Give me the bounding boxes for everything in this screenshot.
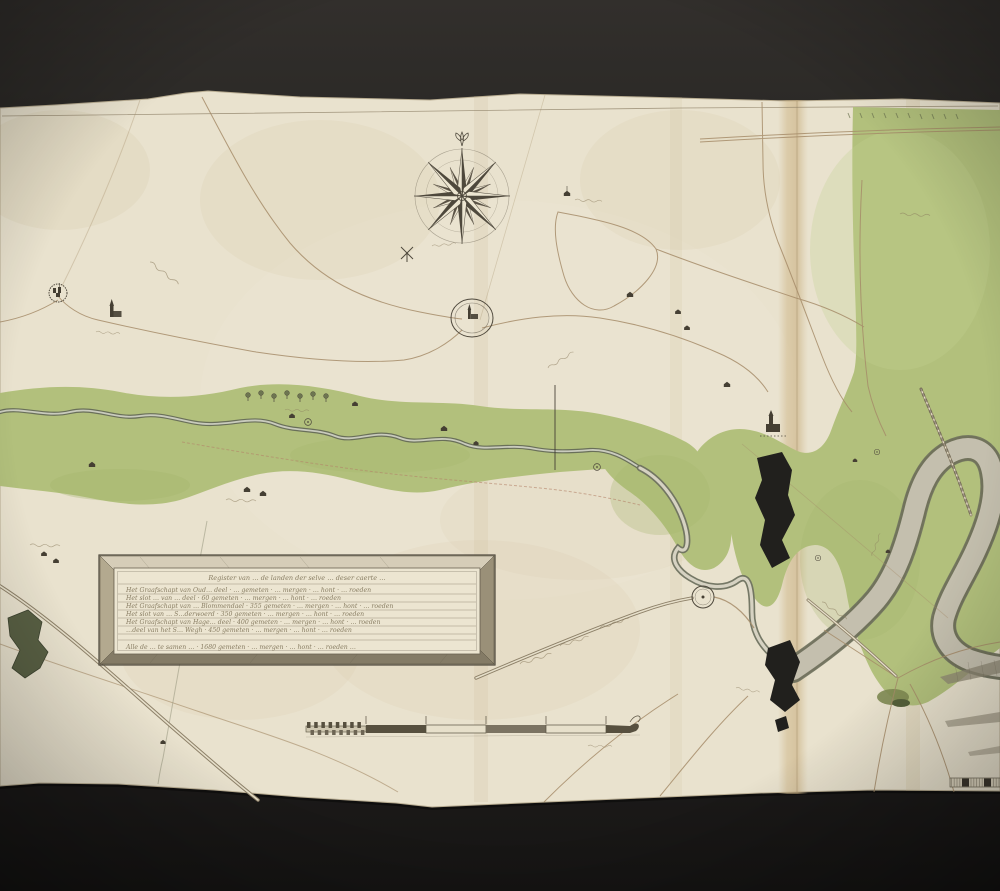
photo-of-manuscript-map: Register van … de landen der selve … des… (0, 0, 1000, 891)
map-canvas: Register van … de landen der selve … des… (0, 0, 1000, 891)
photo-vignette (0, 0, 1000, 891)
